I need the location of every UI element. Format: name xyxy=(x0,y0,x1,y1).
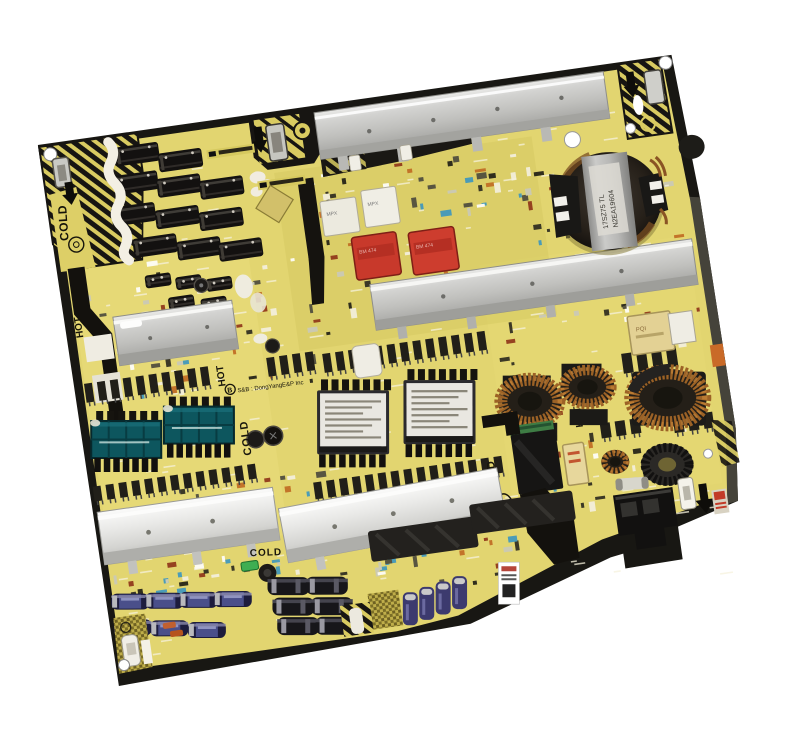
svg-text:COLD: COLD xyxy=(55,205,72,242)
svg-text:B: B xyxy=(227,387,233,395)
svg-text:COLD: COLD xyxy=(250,547,283,559)
